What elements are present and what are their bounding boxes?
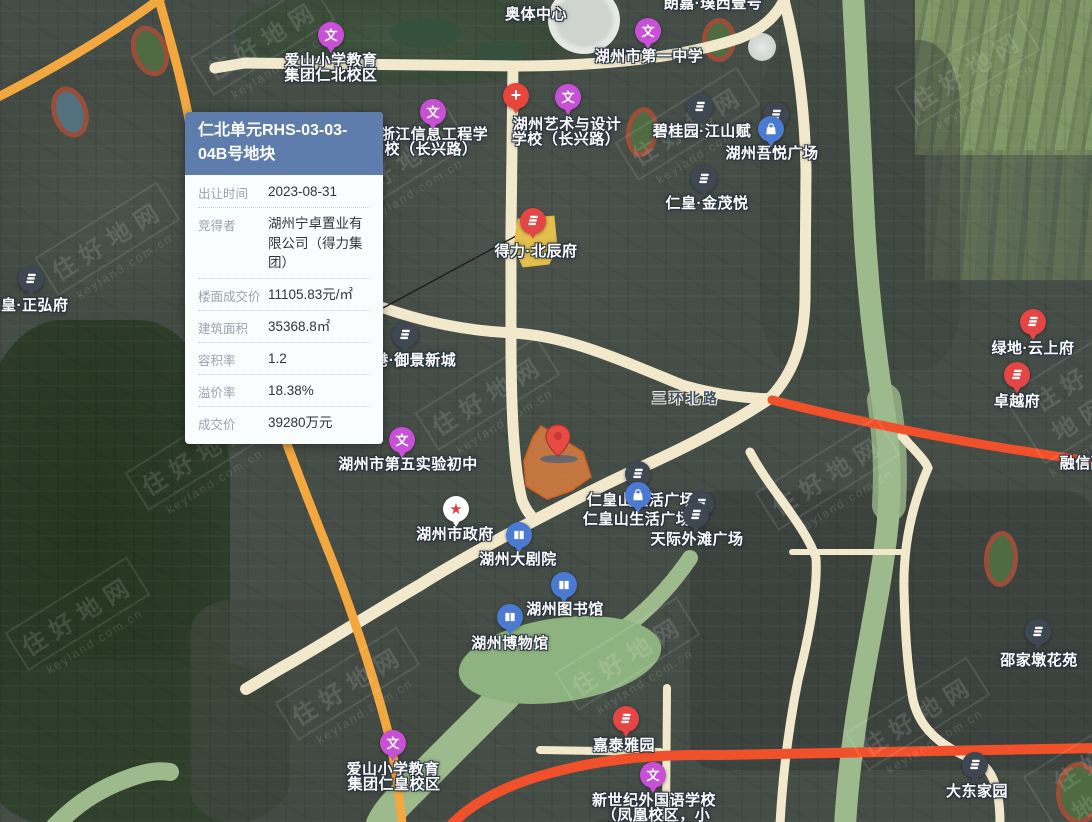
hospital-pin[interactable]: +	[503, 83, 529, 109]
card-row-value: 39280万元	[268, 413, 333, 433]
road-label: 三环北路	[652, 388, 720, 408]
shopping-bag-icon	[764, 122, 778, 136]
building-stack-icon	[398, 328, 412, 342]
card-row-label: 竞得者	[198, 214, 268, 234]
card-row-label: 容积率	[198, 349, 268, 369]
park-pond	[389, 18, 461, 48]
card-row-value: 2023-08-31	[268, 182, 337, 202]
road-east-curve	[770, 0, 806, 398]
building-stack-icon	[1031, 625, 1045, 639]
card-row-label: 楼面成交价	[198, 285, 268, 305]
dadong-jiayuan-pin[interactable]	[962, 752, 988, 778]
parcel-info-card: 仁北单元RHS-03-03-04B号地块 出让时间2023-08-31竞得者湖州…	[185, 112, 383, 444]
card-row: 楼面成交价11105.83元/㎡	[198, 279, 370, 311]
huzhou-art-design-school-label: 学校（长兴路）	[512, 128, 621, 149]
zhejiang-info-eng-school-label: 校（长兴路）	[384, 138, 477, 159]
huzhou-art-design-school-pin[interactable]: 文	[555, 84, 581, 110]
new-century-foreign-school-pin[interactable]: 文	[640, 762, 666, 788]
dagang-yujing-xincheng-pin[interactable]	[392, 322, 418, 348]
card-row: 容积率1.2	[198, 343, 370, 375]
card-row: 溢价率18.38%	[198, 375, 370, 407]
huzhou-grand-theatre-pin[interactable]	[506, 522, 532, 548]
parcel-details: 出让时间2023-08-31竞得者湖州宁卓置业有限公司（得力集团）楼面成交价11…	[185, 175, 383, 444]
zhuoyuefu-pin[interactable]	[1004, 362, 1030, 388]
renhuangshan-life-plaza-2b-pin[interactable]	[683, 502, 709, 528]
card-row-value: 35368.8㎡	[268, 317, 330, 337]
book-icon	[512, 528, 526, 542]
school-wen-icon: 文	[641, 25, 654, 38]
card-row-value: 18.38%	[268, 381, 314, 401]
renhuangshan-life-plaza-pin[interactable]	[625, 482, 651, 508]
shaojiadun-huayuan-pin[interactable]	[1025, 619, 1051, 645]
aishan-primary-renhuang-label: 集团仁皇校区	[347, 773, 440, 794]
school-wen-icon: 文	[324, 29, 337, 42]
aoti-center-label: 奥体中心	[505, 3, 567, 24]
road-river-west	[750, 452, 816, 822]
card-row-label: 溢价率	[198, 381, 268, 401]
building-stack-icon	[968, 758, 982, 772]
huzhou-no5-experimental-label: 湖州市第五实验初中	[338, 453, 478, 474]
school-wen-icon: 文	[646, 769, 659, 782]
building-stack-icon	[631, 467, 645, 481]
card-row: 成交价39280万元	[198, 407, 370, 438]
card-row-value: 11105.83元/㎡	[268, 285, 353, 305]
parcel-title: 仁北单元RHS-03-03-04B号地块	[185, 112, 383, 175]
school-wen-icon: 文	[426, 106, 439, 119]
aishan-primary-renbei-pin[interactable]: 文	[318, 22, 344, 48]
hospital-cross-icon: +	[511, 86, 522, 104]
building-stack-icon	[1010, 368, 1024, 382]
deli-beichenfu-pin[interactable]	[520, 208, 546, 234]
huzhou-no5-experimental-pin[interactable]: 文	[389, 427, 415, 453]
school-wen-icon: 文	[386, 737, 399, 750]
rongxin-label: 融信融	[1060, 452, 1092, 473]
aishan-primary-renhuang-pin[interactable]: 文	[380, 730, 406, 756]
zhejiang-info-eng-school-pin[interactable]: 文	[420, 99, 446, 125]
aishan-primary-renbei-label: 集团仁北校区	[284, 64, 377, 85]
renhuang-jinmaoyue-pin[interactable]	[691, 166, 717, 192]
selected-location-pin[interactable]	[543, 423, 573, 459]
shopping-bag-icon	[631, 488, 645, 502]
building-stack-icon	[526, 214, 540, 228]
building-stack-icon	[24, 272, 38, 286]
langjia-puxi-no1-label: 朗嘉·璞西壹号	[664, 0, 763, 13]
building-stack-icon	[689, 508, 703, 522]
renhuang-zhenghongfu-pin[interactable]	[18, 266, 44, 292]
building-stack-icon	[693, 100, 707, 114]
building-stack-icon	[619, 712, 633, 726]
book-icon	[503, 610, 517, 624]
huzhou-library-pin[interactable]	[551, 572, 577, 598]
card-row-value: 湖州宁卓置业有限公司（得力集团）	[268, 214, 370, 273]
card-row-label: 建筑面积	[198, 317, 268, 337]
government-star-icon: ★	[449, 502, 462, 517]
jiatai-yayuan-pin[interactable]	[613, 706, 639, 732]
card-row-value: 1.2	[268, 349, 287, 369]
school-wen-icon: 文	[561, 91, 574, 104]
school-wen-icon: 文	[395, 434, 408, 447]
huzhou-museum-pin[interactable]	[497, 604, 523, 630]
map-canvas[interactable]: 仁北单元RHS-03-03-04B号地块 出让时间2023-08-31竞得者湖州…	[0, 0, 1092, 822]
lvdi-yunshangfu-pin[interactable]	[1020, 309, 1046, 335]
huzhou-no1-middle-school-pin[interactable]: 文	[635, 18, 661, 44]
park-pond	[476, 41, 528, 63]
biguiyuan-jiangshanfu-pin[interactable]	[687, 94, 713, 120]
card-row-label: 出让时间	[198, 182, 268, 202]
book-icon	[557, 578, 571, 592]
card-row: 竞得者湖州宁卓置业有限公司（得力集团）	[198, 208, 370, 279]
huzhou-city-government-pin[interactable]: ★	[443, 496, 469, 522]
building-stack-icon	[697, 172, 711, 186]
card-row: 建筑面积35368.8㎡	[198, 311, 370, 343]
card-row-label: 成交价	[198, 413, 268, 433]
card-row: 出让时间2023-08-31	[198, 176, 370, 208]
building-stack-icon	[1026, 315, 1040, 329]
huzhou-wuyue-plaza-pin[interactable]	[758, 116, 784, 142]
